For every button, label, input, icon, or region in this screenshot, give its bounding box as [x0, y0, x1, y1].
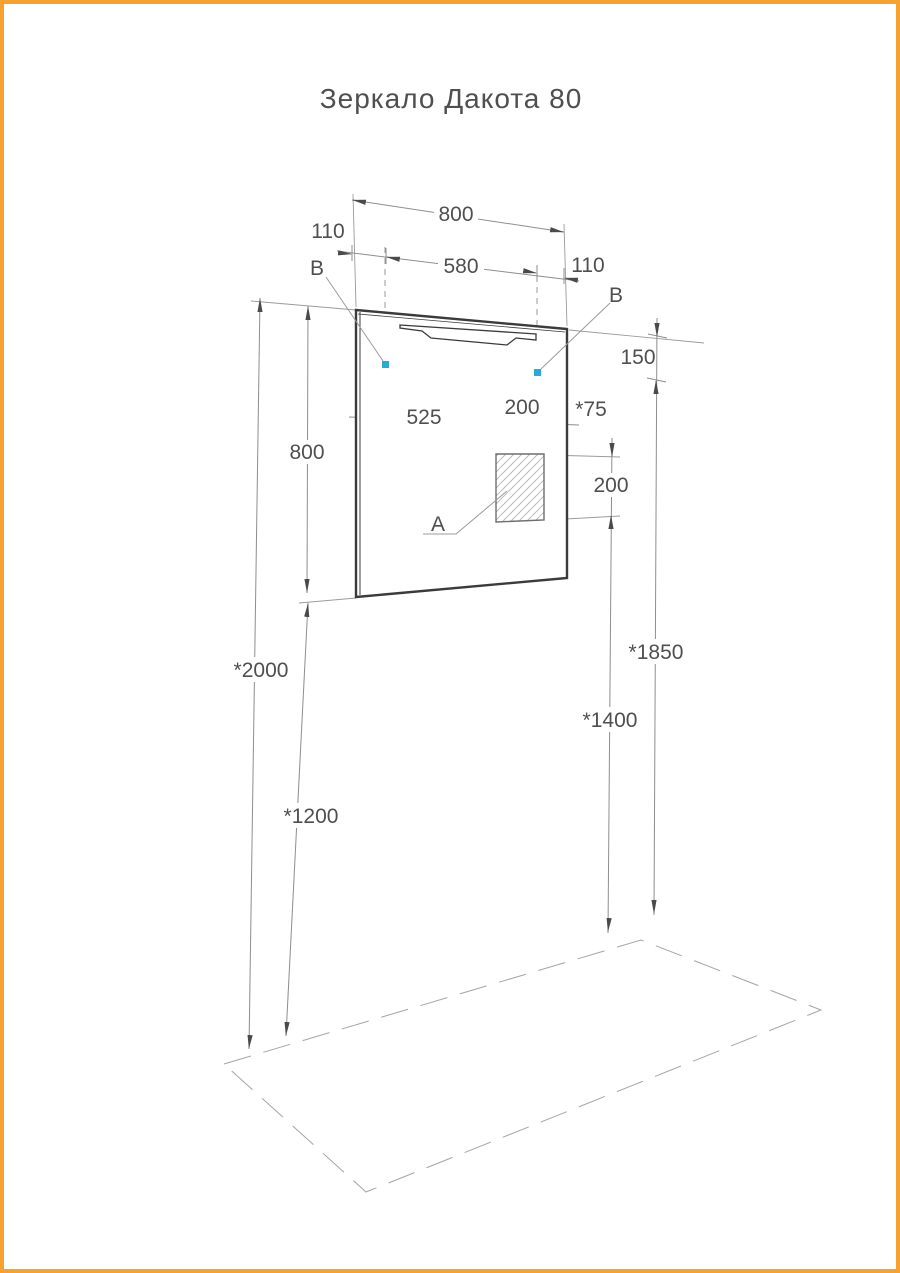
dim-socket-height: 200	[593, 474, 628, 497]
label-mount-right: B	[609, 284, 623, 307]
dim-lamp-offset: 150	[620, 346, 655, 369]
dim-left-offset: 110	[311, 220, 344, 243]
dim-total-width: 800	[438, 203, 473, 226]
label-socket: A	[431, 513, 445, 536]
dim-right-offset: 110	[571, 254, 604, 277]
socket-cutout	[496, 454, 544, 522]
dim-mount-span: 580	[443, 255, 478, 278]
floor-outline	[224, 940, 821, 1192]
dim-socket-to-edge: *75	[575, 398, 607, 421]
dim-socket-from-left: 525	[406, 406, 441, 429]
mount-point-right	[534, 369, 541, 376]
dim-top-height: *2000	[234, 659, 289, 682]
drawing-page: Зеркало Дакота 80	[0, 0, 900, 1273]
technical-drawing: Зеркало Дакота 80	[4, 4, 900, 1273]
dim-bottom-height: *1200	[284, 805, 339, 828]
mount-point-left	[382, 361, 389, 368]
dim-socket-top-height: *1850	[629, 641, 684, 664]
drawing-title: Зеркало Дакота 80	[320, 83, 583, 114]
dim-mirror-height: 800	[289, 441, 324, 464]
dim-socket-width: 200	[504, 396, 539, 419]
label-mount-left: B	[310, 257, 324, 280]
dim-socket-bottom-height: *1400	[583, 709, 638, 732]
